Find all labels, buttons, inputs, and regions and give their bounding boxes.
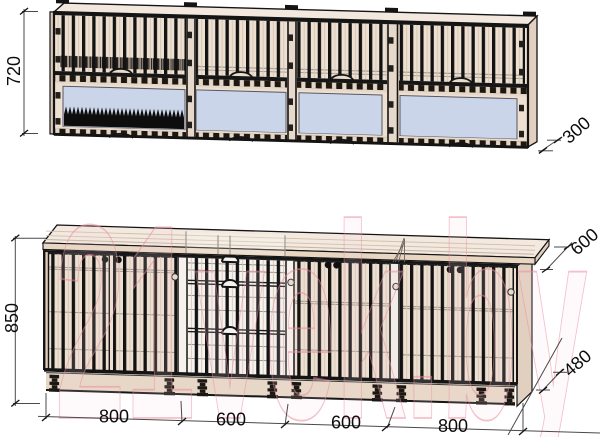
svg-text:600: 600	[331, 413, 361, 433]
svg-text:800: 800	[438, 416, 468, 436]
svg-text:800: 800	[99, 407, 129, 427]
svg-text:850: 850	[2, 303, 22, 333]
svg-text:720: 720	[4, 56, 24, 86]
svg-text:600: 600	[216, 410, 246, 430]
svg-text:21vek.by: 21vek.by	[55, 167, 587, 437]
